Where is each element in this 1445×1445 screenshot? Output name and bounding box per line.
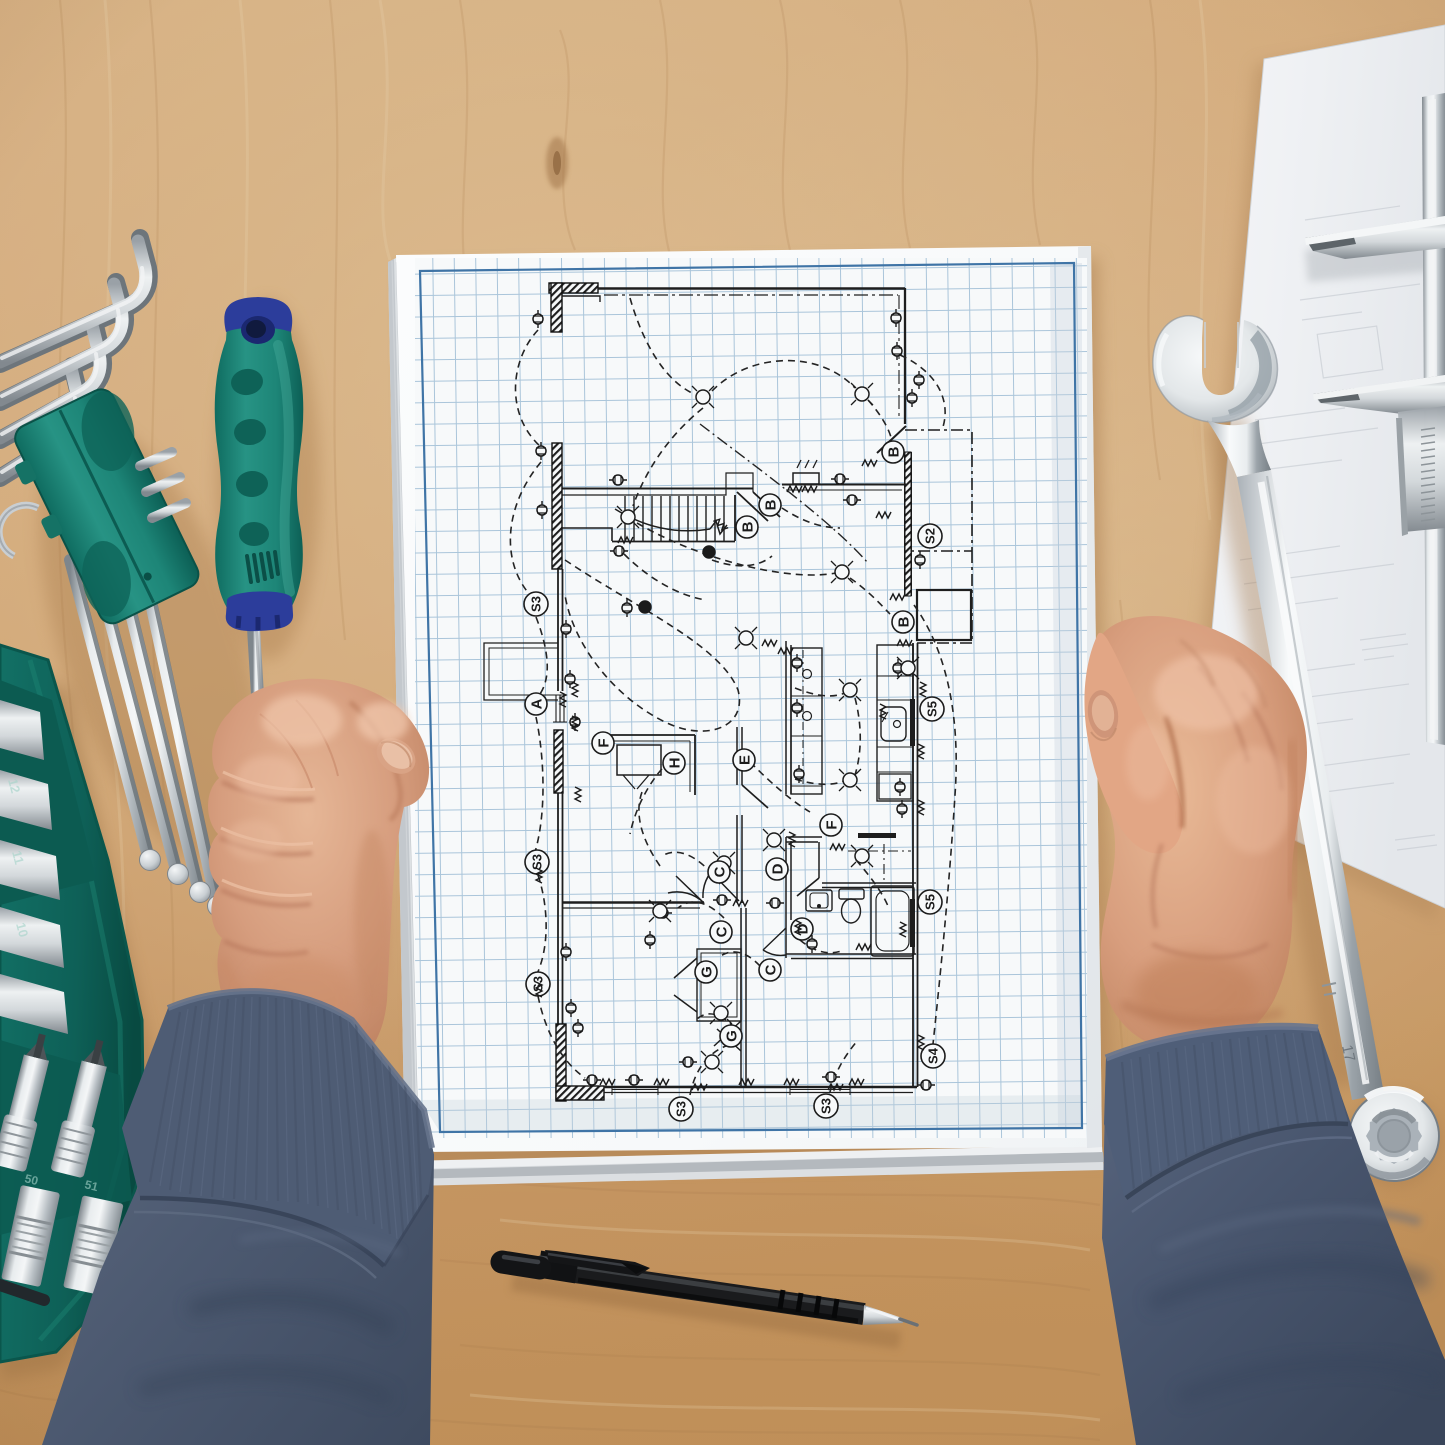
svg-text:S5: S5	[925, 701, 940, 717]
svg-text:E: E	[736, 755, 753, 765]
svg-text:A: A	[528, 698, 545, 709]
svg-text:C: C	[762, 964, 779, 975]
svg-text:S5: S5	[923, 894, 938, 910]
svg-text:B: B	[895, 616, 912, 627]
svg-text:S2: S2	[923, 528, 938, 544]
svg-text:H: H	[666, 758, 683, 769]
svg-text:F: F	[823, 820, 840, 829]
svg-text:G: G	[698, 966, 715, 978]
svg-text:F: F	[595, 738, 612, 747]
svg-text:G: G	[723, 1030, 740, 1042]
svg-text:S3: S3	[819, 1098, 834, 1114]
svg-text:S3: S3	[530, 854, 545, 870]
svg-text:B: B	[762, 499, 779, 510]
svg-text:17: 17	[1338, 1043, 1358, 1063]
svg-text:C: C	[711, 866, 728, 877]
svg-text:S3: S3	[674, 1101, 689, 1117]
svg-text:B: B	[739, 521, 756, 532]
svg-text:C: C	[713, 926, 730, 937]
svg-text:D: D	[769, 863, 786, 874]
svg-text:B: B	[885, 446, 902, 457]
svg-text:S3: S3	[529, 596, 544, 612]
svg-text:S4: S4	[926, 1047, 941, 1064]
